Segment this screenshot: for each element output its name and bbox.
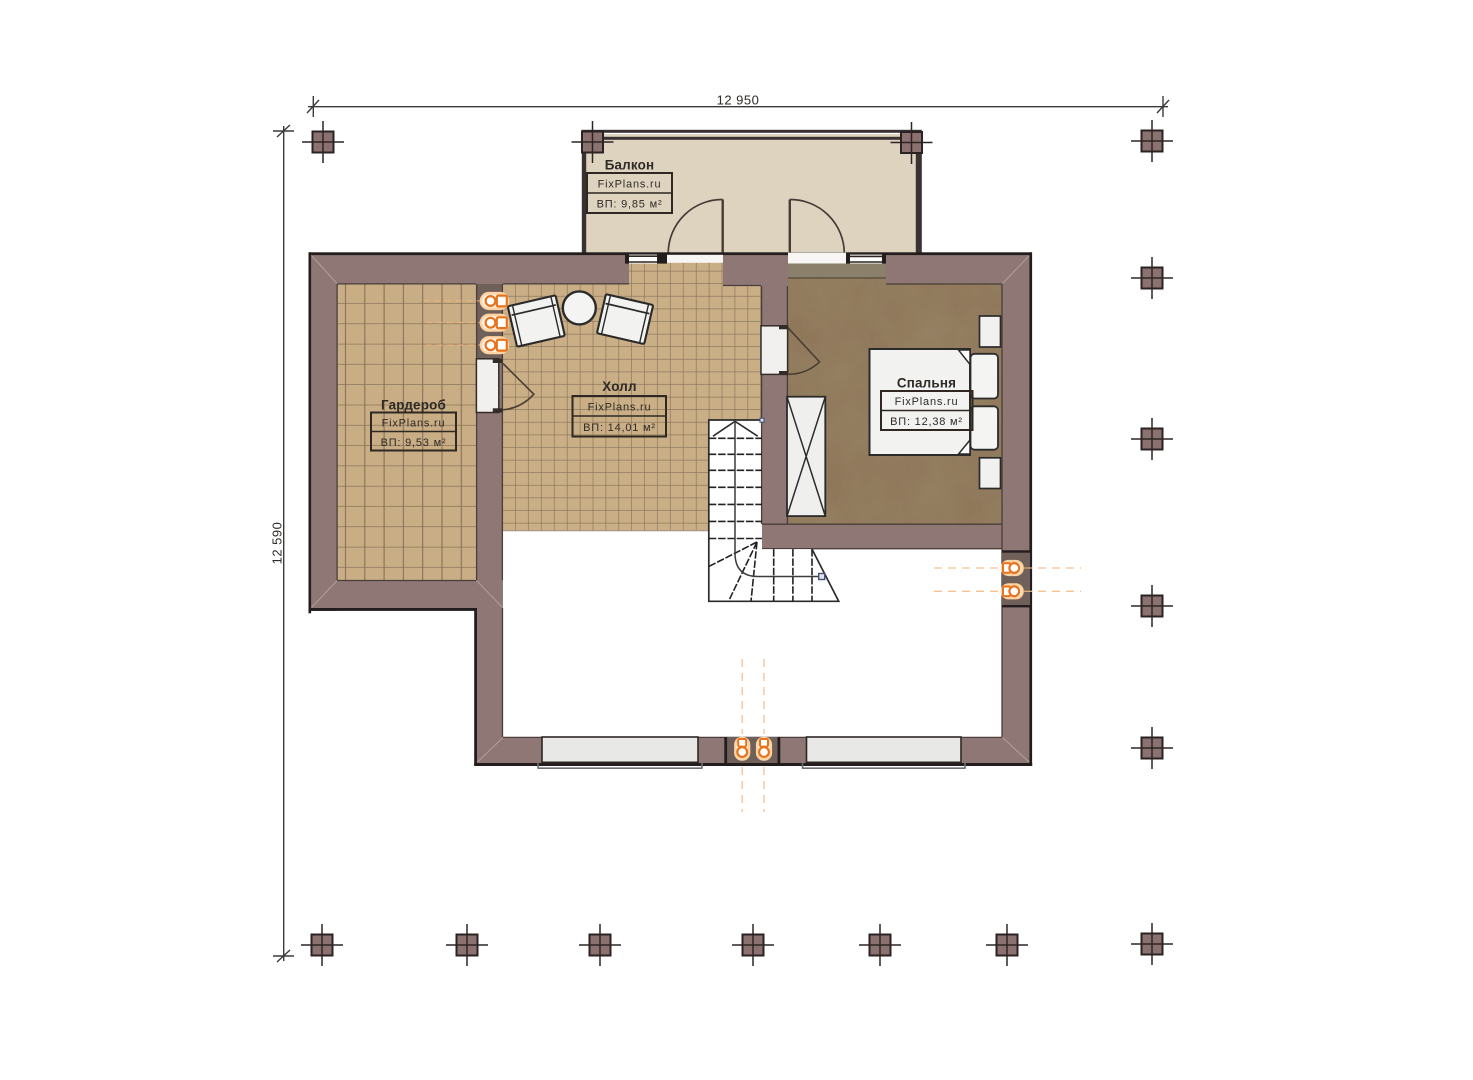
svg-text:Холл: Холл — [602, 379, 636, 394]
svg-text:Гардероб: Гардероб — [381, 397, 446, 412]
svg-text:FixPlans.ru: FixPlans.ru — [588, 402, 652, 414]
svg-text:ВП: 9,85 м²: ВП: 9,85 м² — [597, 199, 663, 211]
svg-text:FixPlans.ru: FixPlans.ru — [598, 179, 662, 191]
svg-text:ВП: 12,38 м²: ВП: 12,38 м² — [890, 416, 963, 428]
svg-text:ВП: 14,01 м²: ВП: 14,01 м² — [583, 422, 656, 434]
svg-text:FixPlans.ru: FixPlans.ru — [895, 396, 959, 408]
svg-text:Балкон: Балкон — [605, 158, 655, 173]
svg-text:FixPlans.ru: FixPlans.ru — [382, 418, 446, 430]
svg-text:ВП: 9,53 м²: ВП: 9,53 м² — [381, 437, 447, 449]
svg-text:Спальня: Спальня — [897, 376, 956, 391]
svg-text:12 950: 12 950 — [717, 93, 760, 108]
svg-text:12 590: 12 590 — [270, 522, 285, 565]
